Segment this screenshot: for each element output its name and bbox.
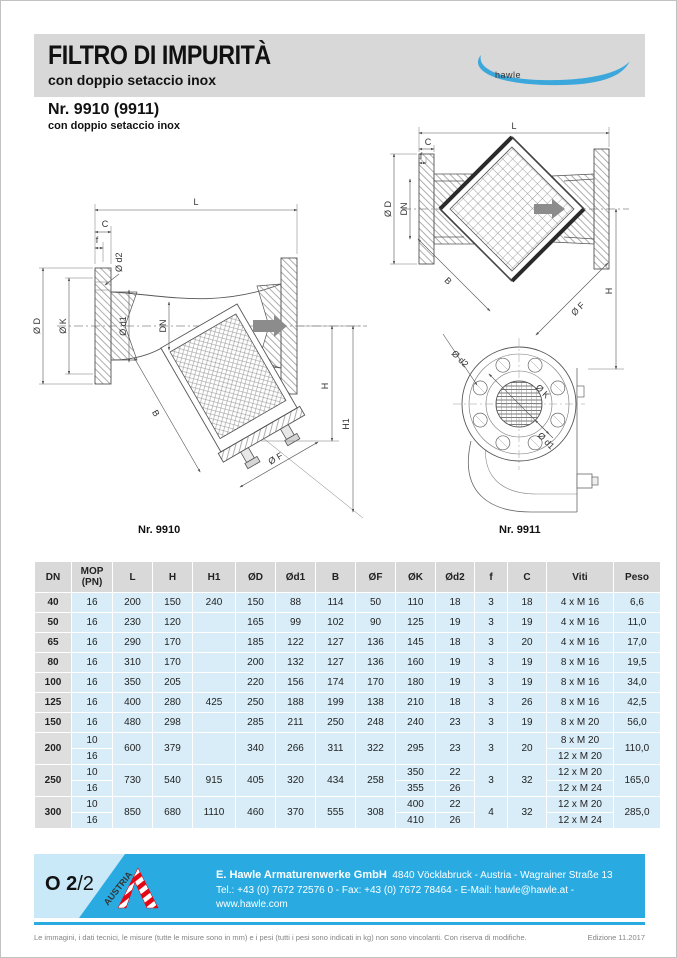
col-header-dn: DN [35,562,71,592]
col-header-mop: MOP (PN) [72,562,112,592]
table-row: 6516290170185122127136145183204 x M 1617… [35,633,660,652]
table-row: 50162301201659910290125193194 x M 1611,0 [35,613,660,632]
company-name: E. Hawle Armaturenwerke GmbH [216,869,387,881]
table-row: 15016480298285211250248240233198 x M 205… [35,713,660,732]
dim-label-d2: Ø d2 [450,348,471,369]
austria-logo: AUSTRIA [104,866,162,910]
company-line2: Tel.: +43 (0) 7672 72576 0 - Fax: +43 (0… [216,884,645,913]
col-header-viti: Viti [547,562,613,592]
table-header-row: DN MOP (PN) L H H1 ØD Ød1 B ØF ØK Ød2 f … [35,562,660,592]
col-header-h: H [153,562,192,592]
logo-wordmark: hawle [495,70,521,80]
page-title: FILTRO DI IMPURITÀ [48,40,271,71]
edition-label: Edizione 11.2017 [588,933,645,942]
drawing-9911: Ø d2 Ø K Ø d1 [431,326,651,551]
col-header-F: ØF [356,562,395,592]
col-header-d1: Ød1 [276,562,315,592]
table-row: 10016350205220156174170180193198 x M 163… [35,673,660,692]
disclaimer-text: Le immagini, i dati tecnici, le misure (… [34,933,527,942]
dim-label-B: B [442,275,453,286]
dim-label-DN: DN [158,320,168,333]
dim-label-L: L [193,197,198,207]
col-header-D: ØD [236,562,275,592]
dim-label-C: C [425,137,432,147]
caption-9911: Nr. 9911 [499,524,541,536]
caption-9910: Nr. 9910 [138,524,180,536]
col-header-h1: H1 [193,562,235,592]
dim-label-d1: Ø d1 [118,316,128,336]
dim-label-f: f [96,235,99,245]
dim-label-H: H [604,288,614,295]
dim-label-d2: Ø d2 [114,252,124,272]
dim-label-H: H [320,383,330,390]
col-header-l: L [113,562,152,592]
legal-note: Edizione 11.2017 Le immagini, i dati tec… [34,933,645,942]
table-row: 12516400280425250188199138210183268 x M … [35,693,660,712]
company-address: 4840 Vöcklabruck - Austria - Wagrainer S… [392,870,612,881]
dim-label-K: Ø K [58,318,68,334]
footer-band: O 2/2 AUSTRIA E. Hawle Armaturenwerke Gm… [34,854,645,918]
dim-label-H1: H1 [341,418,351,430]
dim-label-D: Ø D [384,201,393,218]
product-variant: con doppio setaccio inox [48,120,180,132]
page-code-bold: O 2 [45,873,77,895]
product-number: Nr. 9910 (9911) [48,101,159,119]
drawing-9910: B Ø F L C f Ø d2 Ø D Ø K Ø d1 [29,186,379,546]
dim-label-DN: DN [399,203,409,216]
footer-divider [34,922,645,925]
page-subtitle: con doppio setaccio inox [48,72,216,88]
dim-label-F: Ø F [569,300,587,318]
hawle-logo: hawle [467,39,635,93]
col-header-peso: Peso [614,562,660,592]
col-header-B: B [316,562,355,592]
table-row: 200 1016 60037934026631132229523320 8 x … [35,733,660,764]
table-row: 300 1016 8506801110460370555308 400410 2… [35,797,660,828]
col-header-d2: Ød2 [436,562,474,592]
table-row: 8016310170200132127136160193198 x M 1619… [35,653,660,672]
dim-label-C: C [102,219,109,229]
col-header-f: f [475,562,507,592]
company-line1: E. Hawle Armaturenwerke GmbH 4840 Vöckla… [216,868,645,884]
col-header-K: ØK [396,562,435,592]
dim-label-B: B [150,408,162,418]
dim-label-L: L [511,121,516,131]
table-row: 40162001502401508811450110183184 x M 166… [35,593,660,612]
company-info: E. Hawle Armaturenwerke GmbH 4840 Vöckla… [216,868,645,913]
datasheet-page: FILTRO DI IMPURITÀ con doppio setaccio i… [0,0,677,958]
page-code: O 2/2 [45,873,94,896]
page-code-rest: /2 [77,873,94,895]
dim-label-D: Ø D [32,318,42,335]
dim-label-F: Ø F [267,450,285,466]
header-banner: FILTRO DI IMPURITÀ con doppio setaccio i… [34,34,645,97]
dimension-table: DN MOP (PN) L H H1 ØD Ød1 B ØF ØK Ød2 f … [34,561,661,829]
table-row: 250 1016 730540915405320434258 350355 22… [35,765,660,796]
col-header-c: C [508,562,546,592]
